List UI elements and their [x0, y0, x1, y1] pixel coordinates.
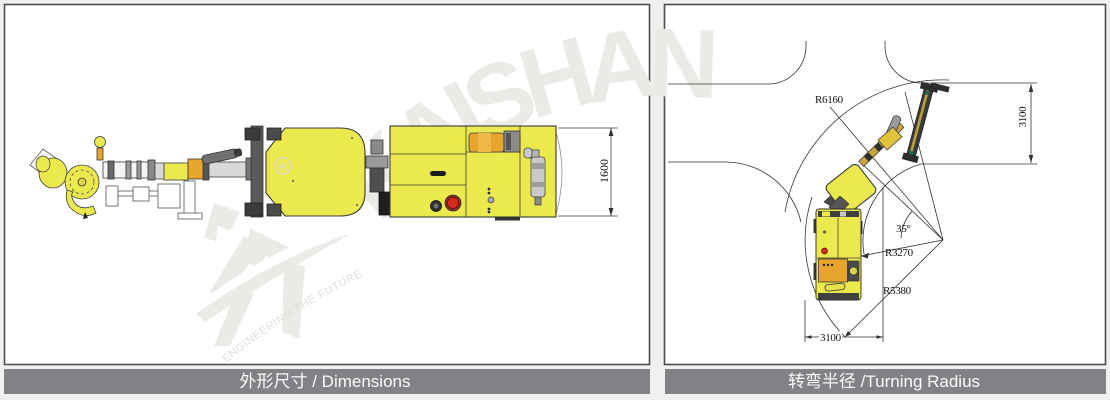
svg-text:35°: 35°	[896, 223, 911, 235]
svg-text:R3270: R3270	[885, 247, 914, 259]
svg-text:1600: 1600	[597, 159, 611, 183]
svg-text:转弯半径 /Turning Radius: 转弯半径 /Turning Radius	[788, 372, 980, 391]
svg-text:R5380: R5380	[883, 285, 912, 297]
svg-text:3100: 3100	[820, 332, 842, 344]
svg-text:3100: 3100	[1017, 106, 1029, 128]
svg-text:R: R	[279, 161, 287, 173]
svg-text:外形尺寸 / Dimensions: 外形尺寸 / Dimensions	[240, 372, 411, 391]
svg-text:R6160: R6160	[815, 94, 844, 106]
